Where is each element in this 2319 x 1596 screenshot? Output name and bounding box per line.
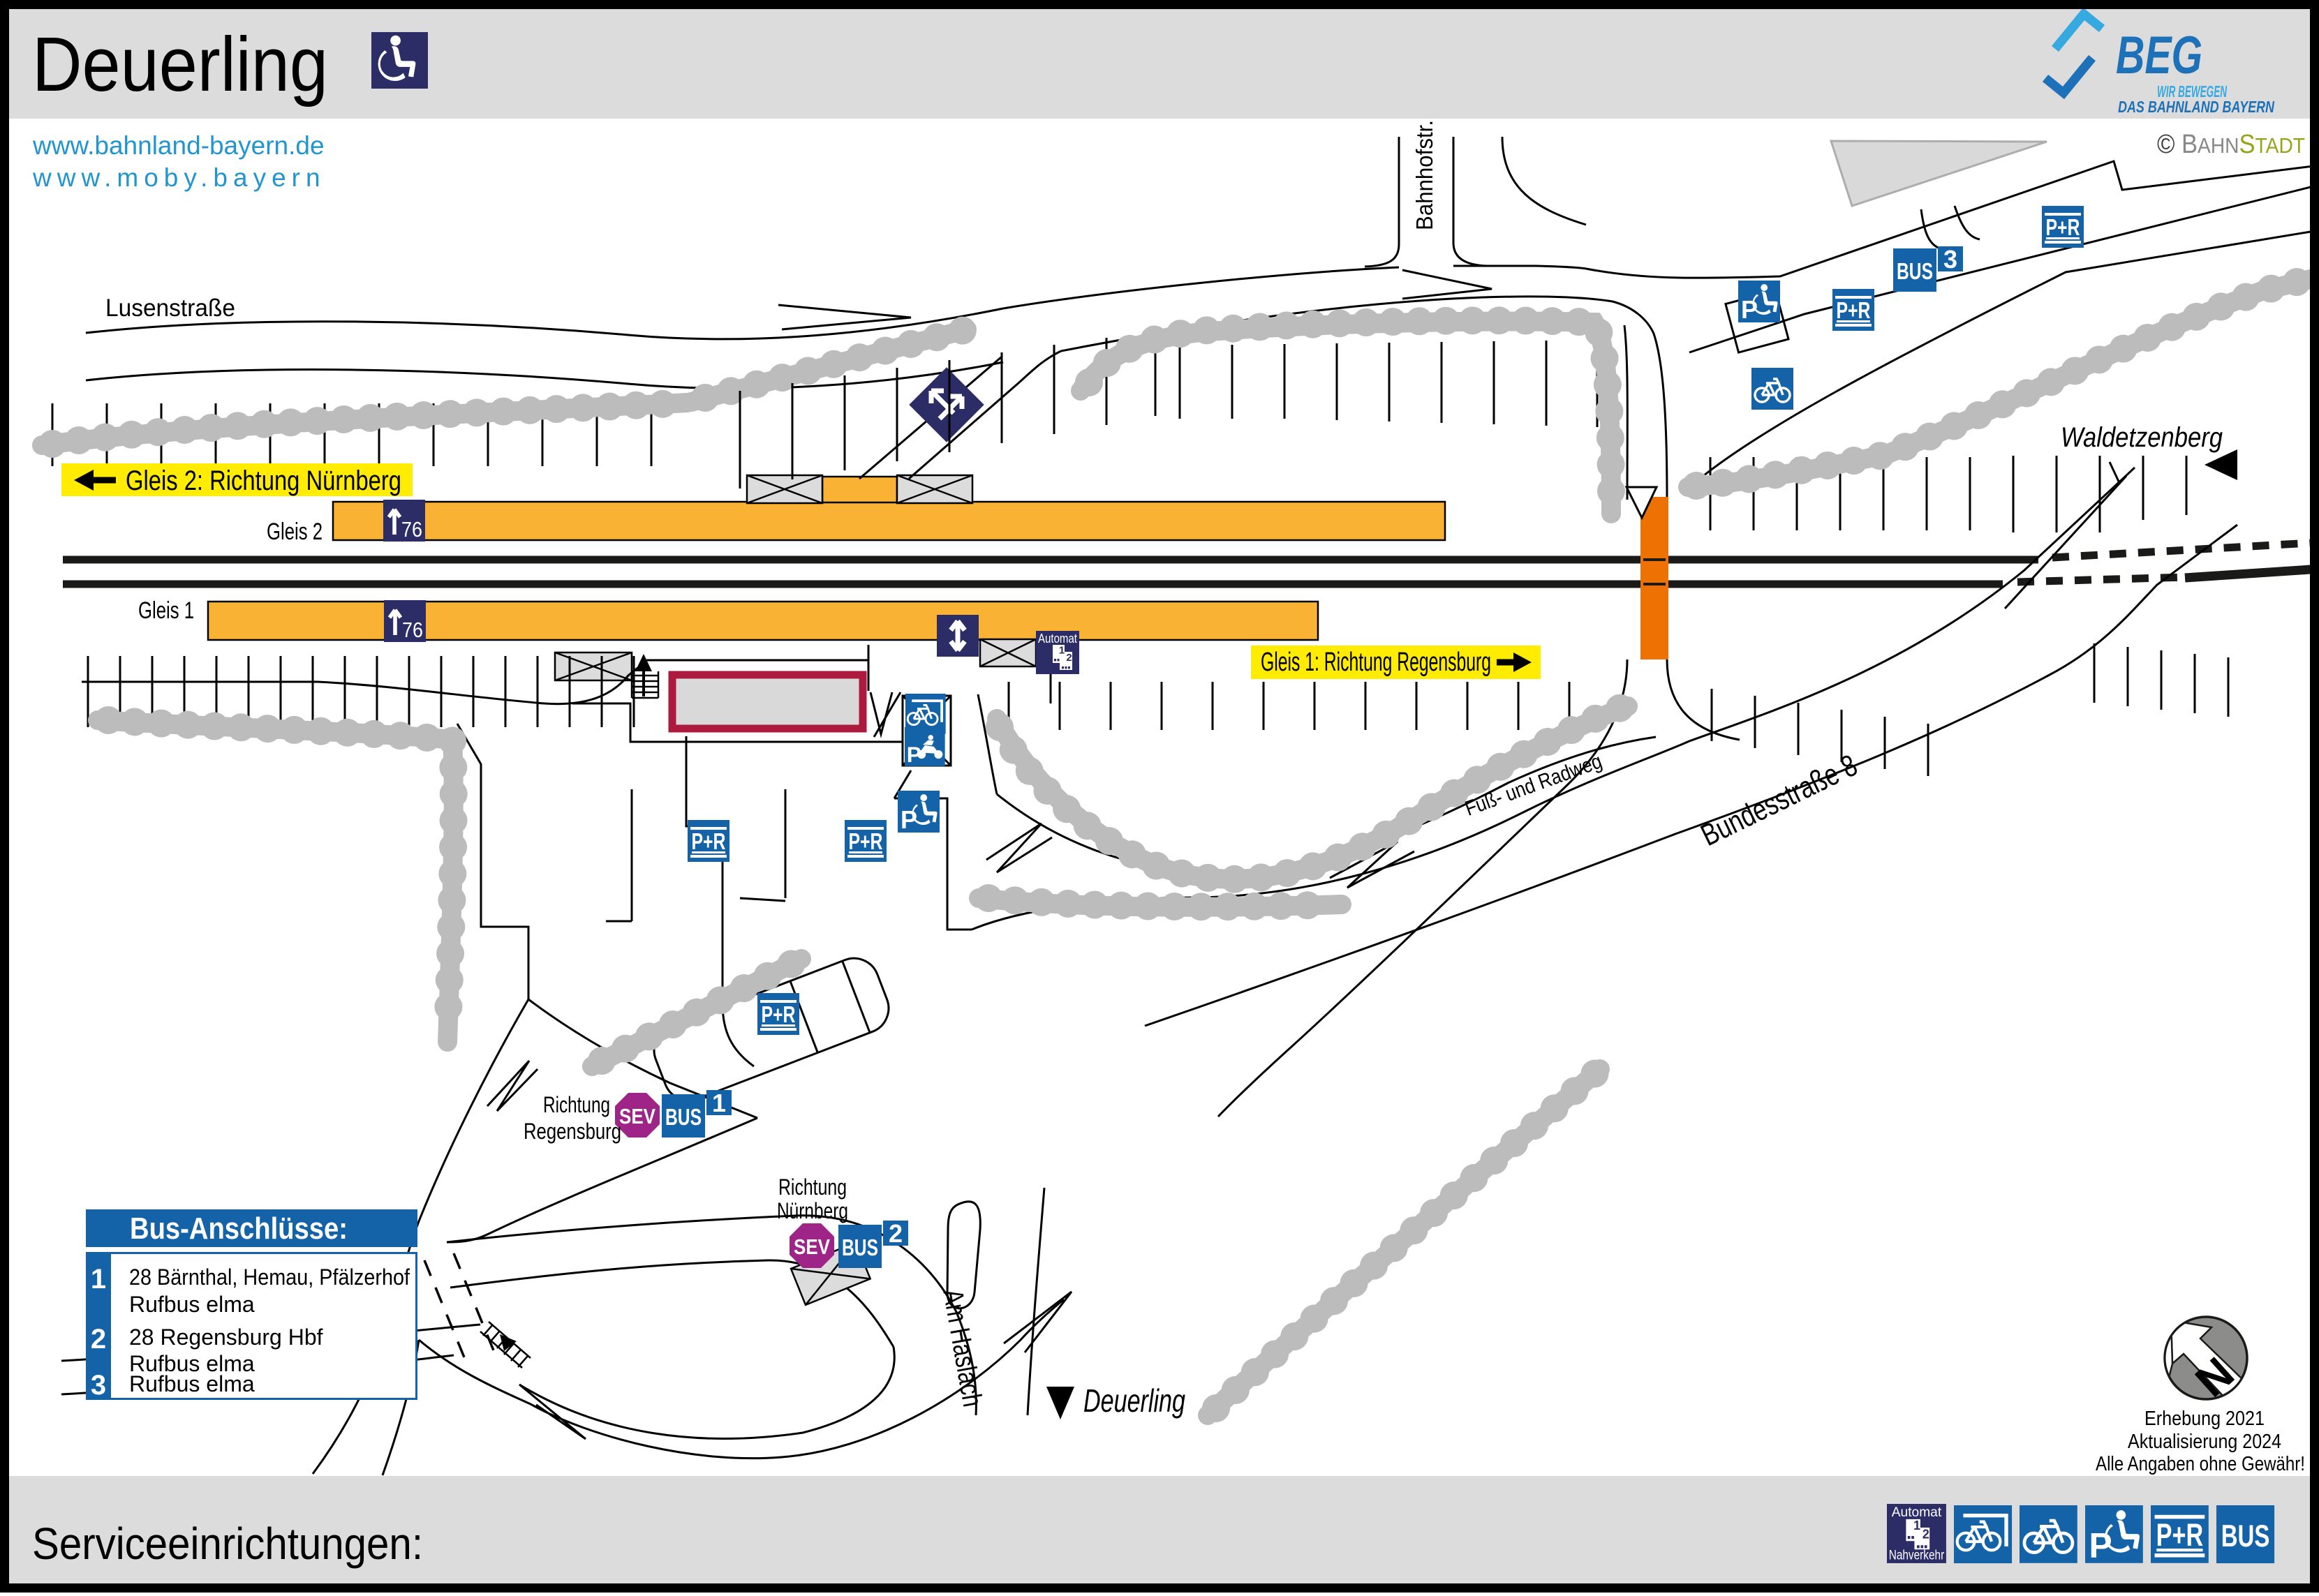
svg-text:2: 2 bbox=[889, 1219, 903, 1248]
svg-text:Rufbus elma: Rufbus elma bbox=[129, 1371, 255, 1396]
svg-text:Deuerling: Deuerling bbox=[32, 22, 328, 107]
svg-text:Aktualisierung 2024: Aktualisierung 2024 bbox=[2128, 1431, 2281, 1453]
svg-text:Lusenstraße: Lusenstraße bbox=[105, 294, 235, 322]
svg-text:3: 3 bbox=[1943, 245, 1957, 274]
svg-text:1: 1 bbox=[91, 1264, 106, 1295]
svg-text:www.moby.bayern: www.moby.bayern bbox=[32, 163, 326, 192]
svg-text:Alle Angaben ohne Gewähr!: Alle Angaben ohne Gewähr! bbox=[2096, 1453, 2305, 1475]
svg-text:3: 3 bbox=[91, 1370, 106, 1401]
svg-text:Waldetzenberg: Waldetzenberg bbox=[2061, 422, 2223, 453]
svg-text:1: 1 bbox=[712, 1089, 726, 1117]
svg-text:Gleis 1: Gleis 1 bbox=[138, 597, 194, 624]
svg-text:© BAHNSTADT: © BAHNSTADT bbox=[2157, 130, 2305, 159]
svg-text:Deuerling: Deuerling bbox=[1083, 1382, 1185, 1419]
svg-text:www.bahnland-bayern.de: www.bahnland-bayern.de bbox=[32, 131, 325, 160]
svg-text:Gleis 2: Gleis 2 bbox=[267, 519, 323, 545]
svg-text:Gleis 1: Richtung Regensburg: Gleis 1: Richtung Regensburg bbox=[1261, 648, 1491, 677]
svg-text:28 Regensburg Hbf: 28 Regensburg Hbf bbox=[129, 1325, 323, 1350]
svg-text:Erhebung 2021: Erhebung 2021 bbox=[2144, 1408, 2265, 1430]
svg-text:Nürnberg: Nürnberg bbox=[777, 1198, 848, 1223]
svg-text:2: 2 bbox=[91, 1324, 106, 1355]
svg-text:Bus-Anschlüsse:: Bus-Anschlüsse: bbox=[130, 1211, 348, 1246]
svg-text:DAS BAHNLAND BAYERN: DAS BAHNLAND BAYERN bbox=[2118, 98, 2274, 116]
svg-text:Richtung: Richtung bbox=[778, 1174, 847, 1200]
svg-text:Gleis 2: Richtung Nürnberg: Gleis 2: Richtung Nürnberg bbox=[126, 465, 401, 496]
svg-text:Bahnhofstr.: Bahnhofstr. bbox=[1412, 120, 1437, 230]
svg-text:Rufbus elma: Rufbus elma bbox=[129, 1292, 255, 1317]
svg-text:Serviceeinrichtungen:: Serviceeinrichtungen: bbox=[32, 1519, 423, 1569]
svg-text:Richtung: Richtung bbox=[543, 1092, 610, 1117]
svg-text:Regensburg: Regensburg bbox=[524, 1119, 621, 1144]
svg-text:28 Bärnthal, Hemau, Pfälzerhof: 28 Bärnthal, Hemau, Pfälzerhof bbox=[129, 1265, 410, 1290]
svg-text:BEG: BEG bbox=[2116, 26, 2202, 85]
